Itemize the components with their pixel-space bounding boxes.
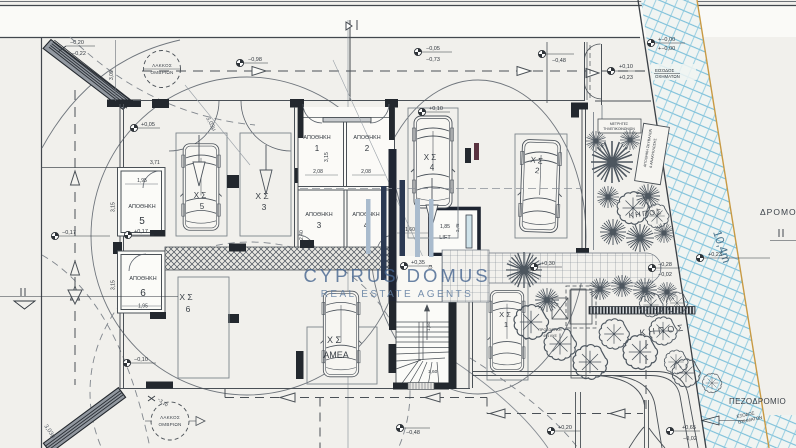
svg-text:−0,28: −0,28 bbox=[658, 262, 672, 268]
svg-text:ΑΠΟΘΗΚΗ: ΑΠΟΘΗΚΗ bbox=[128, 204, 155, 210]
svg-text:2,45: 2,45 bbox=[455, 223, 460, 232]
svg-text:ΑΠΟΘΗΚΗ: ΑΠΟΘΗΚΗ bbox=[305, 212, 332, 218]
svg-text:−0,73: −0,73 bbox=[426, 57, 440, 63]
svg-text:+0,05: +0,05 bbox=[141, 122, 155, 128]
svg-text:ΛΑΚΚΟΣ: ΛΑΚΚΟΣ bbox=[160, 415, 180, 420]
svg-text:ΟΧΗΜΑΤΩΝ: ΟΧΗΜΑΤΩΝ bbox=[655, 74, 680, 79]
svg-text:−0,48: −0,48 bbox=[552, 58, 566, 64]
svg-text:2,08: 2,08 bbox=[361, 169, 371, 175]
svg-text:−0,05: −0,05 bbox=[426, 46, 440, 52]
svg-text:ΠΕΖΟΔΡΟΜΙΟ: ΠΕΖΟΔΡΟΜΙΟ bbox=[729, 397, 786, 406]
svg-text:+0,20: +0,20 bbox=[558, 425, 572, 431]
svg-text:+−0,00: +−0,00 bbox=[658, 46, 675, 52]
svg-text:−0,10: −0,10 bbox=[134, 357, 148, 363]
svg-text:3: 3 bbox=[317, 221, 322, 230]
svg-text:3,71: 3,71 bbox=[150, 160, 160, 166]
svg-text:−0,17: −0,17 bbox=[62, 230, 76, 236]
svg-text:+0,23: +0,23 bbox=[708, 252, 722, 258]
svg-text:ΟΜΒΡΙΩΝ: ΟΜΒΡΙΩΝ bbox=[159, 422, 182, 427]
svg-text:3,09: 3,09 bbox=[109, 70, 115, 80]
svg-text:CYPRUS DOMUS: CYPRUS DOMUS bbox=[303, 265, 490, 286]
svg-text:−0,48: −0,48 bbox=[406, 430, 420, 436]
svg-text:+0,17: +0,17 bbox=[134, 229, 148, 235]
svg-text:−0,22: −0,22 bbox=[72, 51, 86, 57]
svg-text:6: 6 bbox=[140, 288, 146, 299]
svg-text:ΟΜΒΡΙΩΝ: ΟΜΒΡΙΩΝ bbox=[151, 70, 174, 75]
svg-text:2,40: 2,40 bbox=[299, 230, 305, 240]
svg-text:2,08: 2,08 bbox=[313, 169, 323, 175]
svg-text:−0,02: −0,02 bbox=[683, 436, 697, 442]
svg-text:+0,35: +0,35 bbox=[411, 260, 425, 266]
svg-text:1,95: 1,95 bbox=[138, 304, 148, 310]
svg-text:ΤΗΛΕΠΙΚΟΙΝΩΝΙΩΝ: ΤΗΛΕΠΙΚΟΙΝΩΝΙΩΝ bbox=[603, 127, 635, 131]
svg-text:3,15: 3,15 bbox=[111, 202, 117, 212]
svg-text:ΕΙΣΟΔΟΣ: ΕΙΣΟΔΟΣ bbox=[655, 68, 674, 73]
svg-text:1: 1 bbox=[315, 144, 320, 153]
svg-text:494 ΛΥΕ: 494 ΛΥΕ bbox=[543, 334, 557, 338]
svg-text:−0,98: −0,98 bbox=[248, 57, 262, 63]
svg-text:1,60: 1,60 bbox=[428, 369, 438, 375]
svg-text:3,15: 3,15 bbox=[324, 152, 330, 162]
svg-text:ξ3: ξ3 bbox=[428, 264, 433, 269]
svg-text:−0,02: −0,02 bbox=[658, 272, 672, 278]
svg-text:1,60: 1,60 bbox=[405, 227, 415, 233]
svg-text:+−0,00: +−0,00 bbox=[658, 37, 675, 43]
svg-text:−0,20: −0,20 bbox=[70, 40, 84, 46]
svg-text:ΑΠΟΘΗΚΗ: ΑΠΟΘΗΚΗ bbox=[303, 135, 330, 141]
svg-text:1,50: 1,50 bbox=[426, 321, 432, 331]
svg-text:+0,65: +0,65 bbox=[682, 425, 696, 431]
svg-text:REAL ESTATE AGENTS: REAL ESTATE AGENTS bbox=[321, 289, 474, 300]
svg-text:ΔΡΟΜΟ: ΔΡΟΜΟ bbox=[760, 207, 796, 217]
svg-text:ΑΠΟΘΗΚΗ: ΑΠΟΘΗΚΗ bbox=[353, 135, 380, 141]
svg-text:ΑΠΟΘΗΚΗ: ΑΠΟΘΗΚΗ bbox=[129, 276, 156, 282]
svg-text:3,15: 3,15 bbox=[111, 280, 117, 290]
svg-text:1,85: 1,85 bbox=[440, 224, 450, 230]
svg-text:ΛΑΚΚΟΣ: ΛΑΚΚΟΣ bbox=[152, 63, 172, 68]
svg-text:2: 2 bbox=[365, 144, 370, 153]
svg-text:ΜΕΤΡΗΤΕΣ: ΜΕΤΡΗΤΕΣ bbox=[610, 122, 628, 126]
svg-text:+0,10: +0,10 bbox=[619, 64, 633, 70]
svg-text:+0,23: +0,23 bbox=[619, 75, 633, 81]
svg-text:+0,30: +0,30 bbox=[541, 261, 555, 267]
svg-text:+0,10: +0,10 bbox=[429, 106, 443, 112]
svg-text:5: 5 bbox=[139, 216, 145, 227]
svg-text:1,95: 1,95 bbox=[137, 178, 147, 184]
